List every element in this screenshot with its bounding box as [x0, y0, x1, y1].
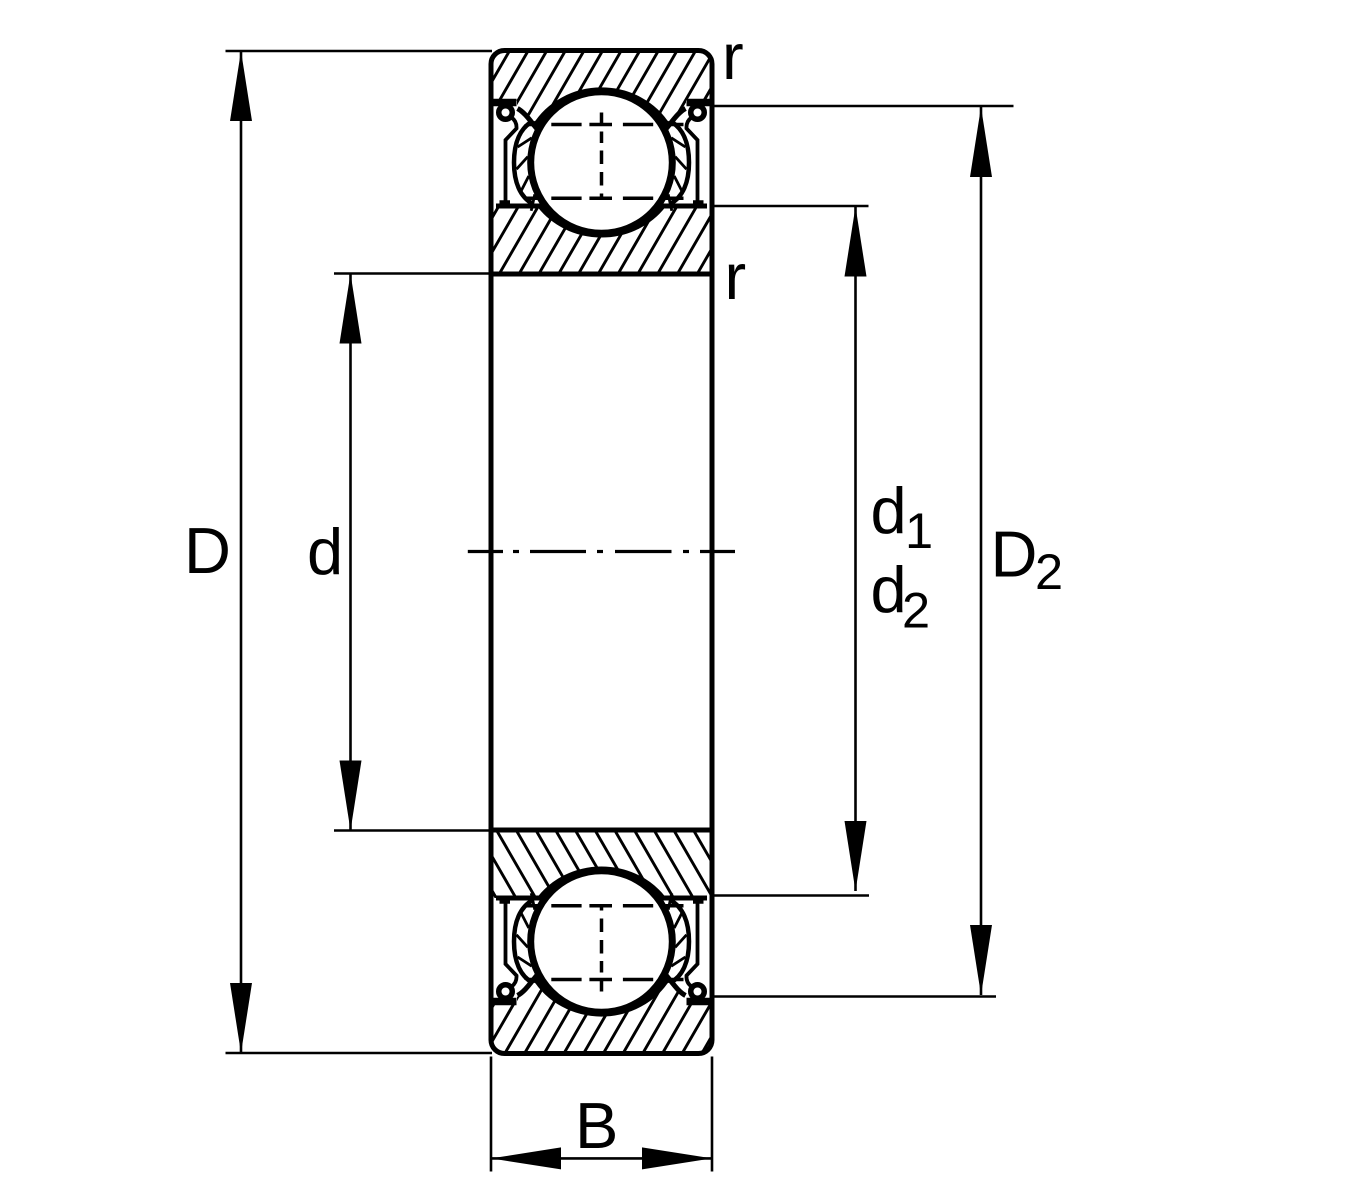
- svg-text:1: 1: [905, 502, 933, 559]
- svg-text:D: D: [991, 518, 1038, 591]
- svg-text:r: r: [722, 20, 744, 93]
- svg-text:B: B: [575, 1089, 618, 1162]
- svg-text:D: D: [184, 514, 231, 587]
- svg-text:2: 2: [902, 582, 930, 639]
- svg-text:d: d: [871, 474, 907, 547]
- svg-text:2: 2: [1035, 543, 1063, 600]
- svg-text:d: d: [307, 515, 343, 588]
- svg-text:r: r: [725, 240, 747, 313]
